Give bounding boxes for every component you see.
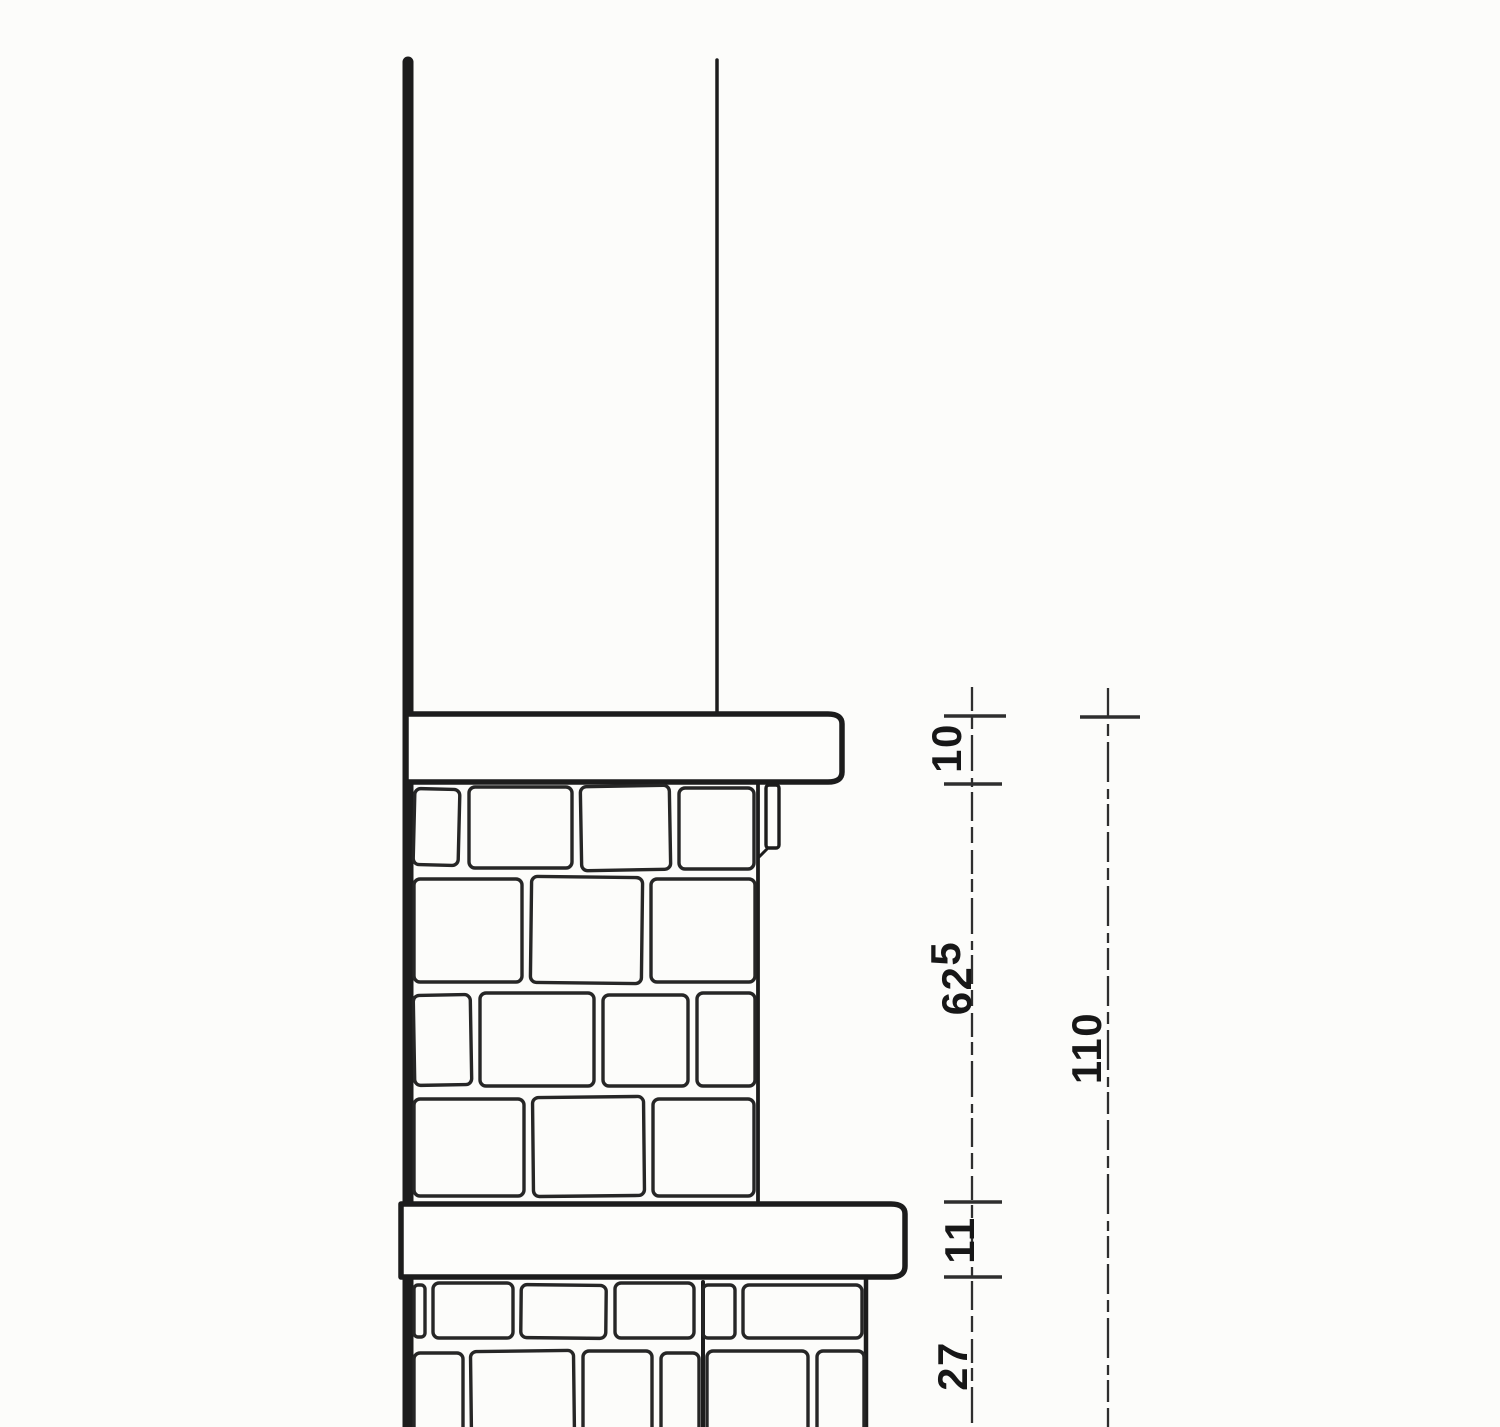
drip-strip <box>766 785 779 848</box>
stone-block <box>413 995 472 1086</box>
stone-block <box>414 1353 463 1427</box>
stone-block <box>521 1285 607 1339</box>
stone-block <box>661 1353 699 1427</box>
stone-block <box>469 787 572 868</box>
stone-block <box>480 993 594 1086</box>
stone-block <box>653 1099 754 1196</box>
scanned-drawing-page: 10 625 11 27 110 <box>0 0 1500 1427</box>
stone-block <box>697 993 755 1086</box>
lower-masonry-row-2 <box>414 1350 864 1427</box>
upper-masonry-row-4 <box>414 1096 754 1196</box>
stone-block <box>743 1285 862 1338</box>
dim-label-base-course: 27 <box>929 1341 976 1391</box>
stone-block <box>703 1285 735 1338</box>
stone-block <box>707 1351 808 1427</box>
dim-label-upper-coping: 10 <box>923 723 970 773</box>
stone-block <box>651 879 755 982</box>
lower-masonry-row-1 <box>414 1283 862 1338</box>
stone-block <box>679 788 754 869</box>
upper-masonry-row-1 <box>413 785 754 871</box>
stone-block <box>603 995 688 1086</box>
stone-block <box>413 788 460 865</box>
stone-block <box>414 1099 524 1196</box>
drip-groove <box>759 785 779 857</box>
stone-block <box>532 1096 644 1196</box>
upper-masonry-row-3 <box>413 993 755 1086</box>
dimension-chain-inner <box>944 687 1006 1427</box>
wall-section-drawing: 10 625 11 27 110 <box>0 0 1500 1427</box>
stone-block <box>470 1350 574 1427</box>
upper-coping-stone <box>406 714 842 782</box>
dim-label-lower-coping: 11 <box>936 1216 983 1263</box>
dim-label-overall-height: 110 <box>1063 1012 1110 1084</box>
stone-block <box>583 1351 652 1427</box>
upper-masonry-row-2 <box>414 876 755 983</box>
lower-coping-stone <box>401 1204 905 1277</box>
stone-block <box>615 1283 694 1338</box>
stone-block <box>433 1283 513 1338</box>
stone-block <box>414 879 522 982</box>
dim-label-upper-wall-height: 625 <box>922 941 980 1016</box>
stone-block <box>530 876 642 983</box>
drip-throat-line <box>759 849 767 857</box>
stone-block <box>817 1351 864 1427</box>
stone-block <box>580 785 670 871</box>
stone-block <box>414 1285 425 1337</box>
